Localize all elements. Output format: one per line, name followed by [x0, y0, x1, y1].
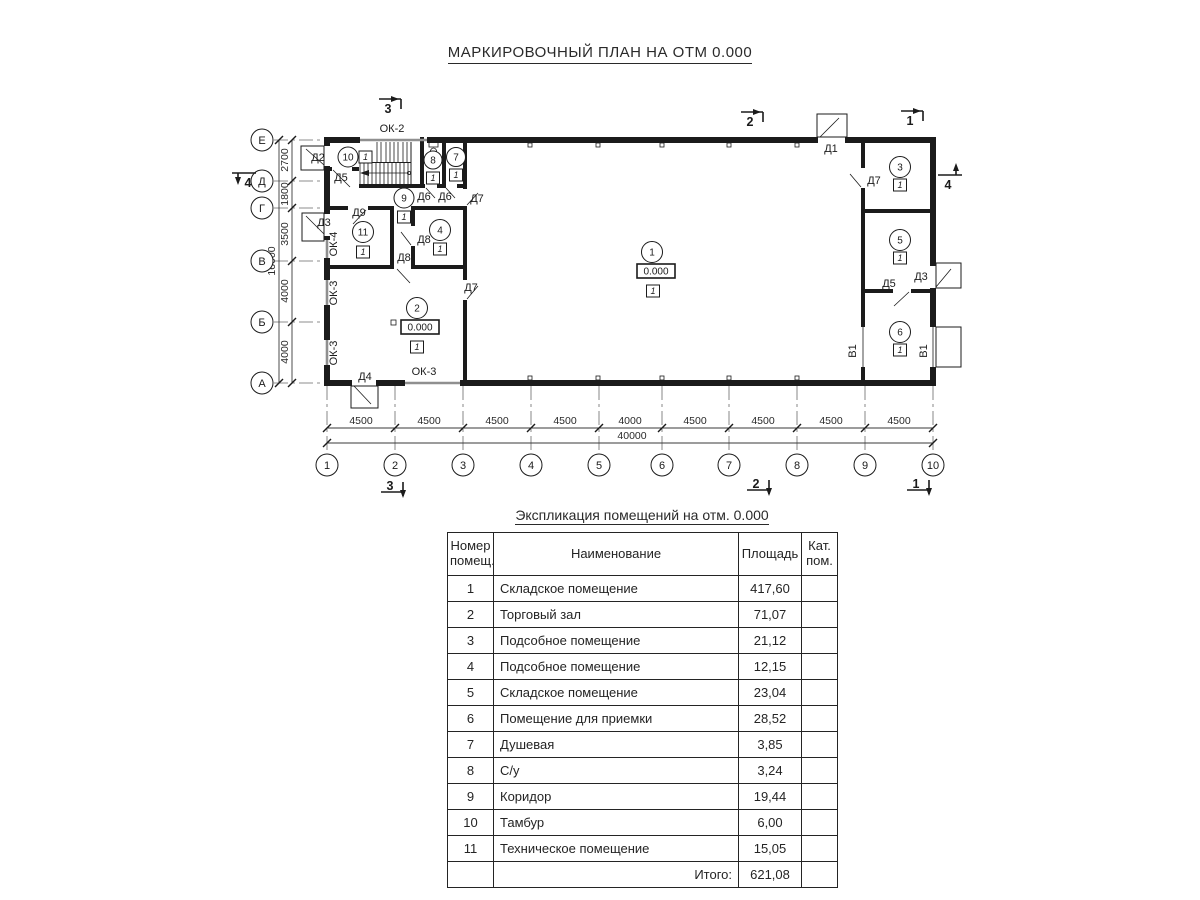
door-label-d9: Д9 [352, 207, 366, 219]
window-label-ok4: ОК-4 [328, 232, 340, 257]
axis-circles-vertical: Е Д Г В Б А [251, 129, 273, 394]
room-3-category: 1 [897, 180, 902, 190]
table-row: 6Помещение для приемки28,52 [448, 706, 838, 732]
door-label-d3-left: Д3 [317, 217, 331, 229]
room-2-number: 2 [414, 304, 420, 315]
row-cat [802, 628, 838, 654]
col-header-category: Кат. пом. [802, 533, 838, 576]
room-11-category: 1 [360, 247, 365, 257]
row-area: 12,15 [739, 654, 802, 680]
window-label-ok2: ОК-2 [380, 123, 405, 135]
axis-5: 5 [596, 460, 602, 472]
row-num: 10 [448, 810, 494, 836]
table-title: Экспликация помещений на отм. 0.000 [447, 507, 837, 525]
axis-circles-horizontal: 1 2 3 4 5 6 7 8 9 10 [316, 454, 944, 476]
row-cat [802, 706, 838, 732]
row-num: 4 [448, 654, 494, 680]
dim-5-6: 4000 [618, 415, 642, 427]
axis-e: Е [258, 135, 265, 147]
row-area: 3,85 [739, 732, 802, 758]
room-1-elevation: 0.000 [643, 267, 668, 278]
row-area: 19,44 [739, 784, 802, 810]
row-cat [802, 784, 838, 810]
gate-label-v1-left: В1 [847, 344, 859, 357]
total-value: 621,08 [739, 862, 802, 888]
row-num: 8 [448, 758, 494, 784]
table-row: 10Тамбур6,00 [448, 810, 838, 836]
row-name: Душевая [494, 732, 739, 758]
room-6-category: 1 [897, 345, 902, 355]
porch-v1 [936, 327, 961, 367]
dim-2-3: 4500 [417, 415, 441, 427]
dim-1-2: 4500 [349, 415, 373, 427]
room-4-number: 4 [437, 226, 443, 237]
room-5-number: 5 [897, 236, 903, 247]
total-empty-num [448, 862, 494, 888]
door-label-d8-b: Д8 [397, 252, 411, 264]
total-label: Итого: [494, 862, 739, 888]
axis-b: Б [258, 317, 265, 329]
room-7-category: 1 [453, 170, 458, 180]
dim-3-4: 4500 [485, 415, 509, 427]
row-area: 28,52 [739, 706, 802, 732]
table-row: 8С/у3,24 [448, 758, 838, 784]
dim-g-v: 3500 [279, 222, 291, 246]
room-5-category: 1 [897, 253, 902, 263]
row-num: 3 [448, 628, 494, 654]
room-6-number: 6 [897, 328, 903, 339]
section-1-top: 1 [907, 114, 914, 128]
room-2-category: 1 [414, 342, 419, 352]
room-schedule: Экспликация помещений на отм. 0.000 Номе… [447, 507, 837, 888]
row-cat [802, 758, 838, 784]
row-area: 417,60 [739, 576, 802, 602]
section-3-top: 3 [385, 102, 392, 116]
room-10-number: 10 [342, 153, 354, 164]
room-9-category: 1 [401, 212, 406, 222]
porch-d3-right [936, 263, 961, 288]
door-label-d4: Д4 [358, 371, 372, 383]
room-3-number: 3 [897, 163, 903, 174]
row-cat [802, 680, 838, 706]
table-row: 9Коридор19,44 [448, 784, 838, 810]
axis-4: 4 [528, 460, 534, 472]
door-label-d8-a: Д8 [417, 234, 431, 246]
room-11-number: 11 [358, 228, 369, 239]
row-cat [802, 810, 838, 836]
row-name: С/у [494, 758, 739, 784]
door-label-d6-a: Д6 [417, 191, 431, 203]
room-4-category: 1 [437, 244, 442, 254]
dim-b-a: 4000 [279, 340, 291, 364]
section-3-bottom: 3 [387, 479, 394, 493]
room-8-category: 1 [430, 173, 435, 183]
dim-9-10: 4500 [887, 415, 911, 427]
dimension-labels: 4500 4500 4500 4500 4000 4500 4500 4500 … [266, 148, 911, 442]
room-1-number: 1 [649, 248, 655, 259]
axis-6: 6 [659, 460, 665, 472]
axis-2: 2 [392, 460, 398, 472]
axis-7: 7 [726, 460, 732, 472]
door-label-d5-left: Д5 [334, 172, 348, 184]
gate-label-v1-right: В1 [918, 344, 930, 357]
row-area: 21,12 [739, 628, 802, 654]
table-row: 3Подсобное помещение21,12 [448, 628, 838, 654]
row-num: 9 [448, 784, 494, 810]
row-num: 7 [448, 732, 494, 758]
door-label-d5-right: Д5 [882, 278, 896, 290]
door-label-d3-right: Д3 [914, 271, 928, 283]
door-label-d1: Д1 [824, 143, 838, 155]
row-cat [802, 654, 838, 680]
axis-10: 10 [927, 460, 939, 472]
dimension-lines [275, 136, 937, 447]
axis-1: 1 [324, 460, 330, 472]
elevation-leader [391, 320, 396, 325]
col-header-area: Площадь [739, 533, 802, 576]
row-cat [802, 602, 838, 628]
door-label-d2: Д2 [311, 152, 325, 164]
row-area: 6,00 [739, 810, 802, 836]
room-9-number: 9 [401, 194, 407, 205]
section-1-bottom: 1 [913, 477, 920, 491]
row-name: Торговый зал [494, 602, 739, 628]
axis-8: 8 [794, 460, 800, 472]
table-row: 5Складское помещение23,04 [448, 680, 838, 706]
dim-7-8: 4500 [751, 415, 775, 427]
row-area: 71,07 [739, 602, 802, 628]
row-num: 11 [448, 836, 494, 862]
room-schedule-table: Номер помещ. Наименование Площадь Кат. п… [447, 532, 838, 888]
dim-8-9: 4500 [819, 415, 843, 427]
floor-plan-drawing: 4500 4500 4500 4500 4000 4500 4500 4500 … [0, 0, 1200, 505]
room-10-category: 1 [363, 152, 368, 162]
row-name: Техническое помещение [494, 836, 739, 862]
row-name: Помещение для приемки [494, 706, 739, 732]
axis-3: 3 [460, 460, 466, 472]
table-total-row: Итого: 621,08 [448, 862, 838, 888]
room-8-number: 8 [430, 156, 436, 167]
window-label-ok3-left-upper: ОК-3 [328, 281, 340, 306]
dim-4-5: 4500 [553, 415, 577, 427]
row-cat [802, 732, 838, 758]
axis-a: А [258, 378, 266, 390]
dim-total-horizontal: 40000 [617, 430, 646, 442]
window-label-ok3-left-lower: ОК-3 [328, 341, 340, 366]
row-name: Подсобное помещение [494, 654, 739, 680]
axis-d: Д [258, 176, 266, 188]
row-area: 3,24 [739, 758, 802, 784]
door-label-d6-b: Д6 [438, 191, 452, 203]
col-header-name: Наименование [494, 533, 739, 576]
dim-v-b: 4000 [279, 279, 291, 303]
row-name: Складское помещение [494, 576, 739, 602]
table-row: 1Складское помещение417,60 [448, 576, 838, 602]
window-label-ok3-bottom: ОК-3 [412, 366, 437, 378]
table-row: 4Подсобное помещение12,15 [448, 654, 838, 680]
row-name: Тамбур [494, 810, 739, 836]
row-num: 1 [448, 576, 494, 602]
axis-g: Г [259, 203, 265, 215]
row-cat [802, 576, 838, 602]
row-area: 23,04 [739, 680, 802, 706]
row-num: 2 [448, 602, 494, 628]
row-name: Коридор [494, 784, 739, 810]
door-label-d7-corridor: Д7 [470, 193, 484, 205]
dim-e-d: 2700 [279, 148, 291, 172]
section-4-right: 4 [945, 178, 952, 192]
row-num: 5 [448, 680, 494, 706]
door-label-d7-room3: Д7 [867, 175, 881, 187]
door-label-d7-room2: Д7 [464, 282, 478, 294]
row-name: Подсобное помещение [494, 628, 739, 654]
row-name: Складское помещение [494, 680, 739, 706]
table-row: 2Торговый зал71,07 [448, 602, 838, 628]
room-7-number: 7 [453, 153, 459, 164]
axis-9: 9 [862, 460, 868, 472]
col-header-number: Номер помещ. [448, 533, 494, 576]
dim-d-g: 1800 [279, 182, 291, 206]
section-4-left: 4 [245, 176, 252, 190]
row-cat [802, 836, 838, 862]
row-num: 6 [448, 706, 494, 732]
row-area: 15,05 [739, 836, 802, 862]
axis-v: В [258, 256, 265, 268]
total-empty-cat [802, 862, 838, 888]
dim-6-7: 4500 [683, 415, 707, 427]
table-row: 11Техническое помещение15,05 [448, 836, 838, 862]
room-2-elevation: 0.000 [407, 323, 432, 334]
section-2-bottom: 2 [753, 477, 760, 491]
section-2-top: 2 [747, 115, 754, 129]
room-1-category: 1 [650, 286, 655, 296]
table-row: 7Душевая3,85 [448, 732, 838, 758]
